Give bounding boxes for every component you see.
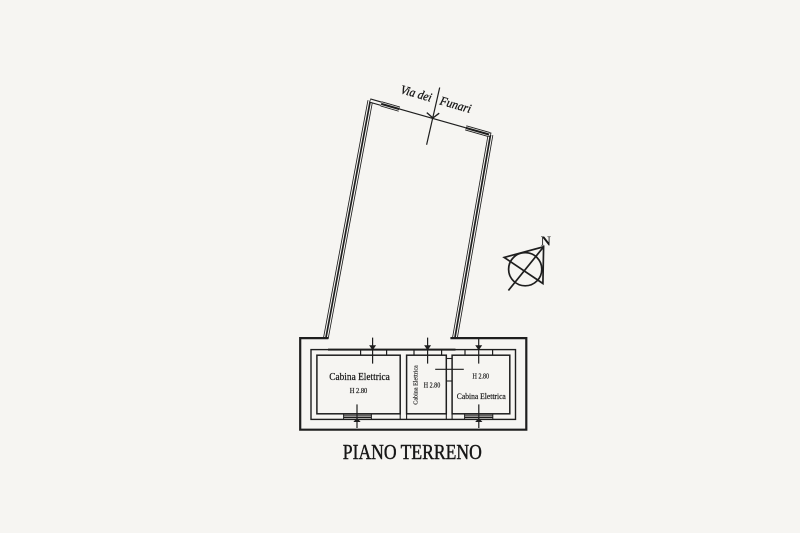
svg-text:H 2.80: H 2.80 <box>350 387 368 395</box>
svg-text:Cabina Elettrica: Cabina Elettrica <box>329 372 390 383</box>
svg-text:Cabina Elettrica: Cabina Elettrica <box>457 391 506 401</box>
svg-text:H 2.80: H 2.80 <box>473 373 490 381</box>
svg-text:PIANO TERRENO: PIANO TERRENO <box>343 440 482 464</box>
svg-text:Cabina Elettrica: Cabina Elettrica <box>413 365 420 405</box>
svg-text:H 2.80: H 2.80 <box>424 382 441 390</box>
svg-text:N: N <box>541 234 551 249</box>
